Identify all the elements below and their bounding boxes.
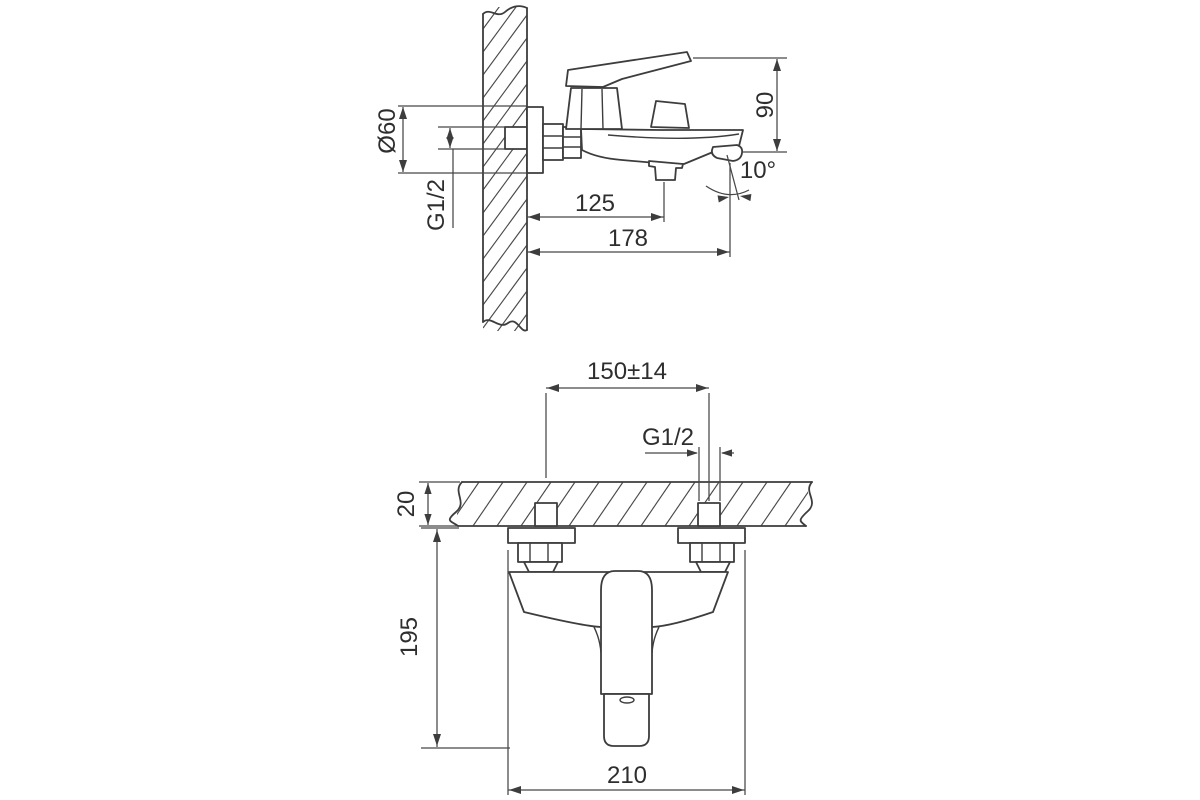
arrow-icon bbox=[547, 384, 559, 392]
spout-tube-front bbox=[604, 694, 649, 746]
angle-arc bbox=[706, 186, 749, 195]
dim-height-195: 195 bbox=[396, 528, 510, 748]
arrow-icon bbox=[773, 59, 781, 71]
arrow-icon bbox=[424, 483, 431, 494]
dim-label-178: 178 bbox=[608, 225, 648, 252]
eccentric-pipe bbox=[505, 127, 527, 149]
pipe-stub-left bbox=[535, 503, 557, 526]
dim-label-150: 150±14 bbox=[587, 358, 667, 385]
mounting-hardware-front bbox=[508, 528, 745, 572]
handle-neck bbox=[566, 88, 622, 129]
dim-wall-to-outlet: 125 bbox=[527, 182, 664, 222]
arrow-icon bbox=[732, 786, 744, 794]
dim-thread-side: G1/2 bbox=[423, 127, 505, 231]
front-view: 150±14 G1/2 bbox=[393, 358, 839, 795]
connector-nut-side bbox=[563, 127, 581, 158]
dim-thread-front: G1/2 bbox=[642, 424, 734, 501]
arrow-icon bbox=[773, 139, 781, 151]
arrow-icon bbox=[721, 449, 732, 456]
wall-hatch-front bbox=[425, 482, 839, 526]
collar-right bbox=[696, 562, 730, 572]
dim-label-20: 20 bbox=[393, 491, 420, 518]
dim-label-195: 195 bbox=[396, 617, 423, 657]
arrow-icon bbox=[424, 514, 431, 525]
side-view: Ø60 G1/2 bbox=[374, 0, 787, 374]
dim-label-210: 210 bbox=[607, 762, 647, 789]
dim-label-10deg: 10° bbox=[740, 157, 776, 184]
wall-section-side bbox=[483, 0, 527, 374]
arrow-icon bbox=[433, 734, 441, 746]
arrow-icon bbox=[433, 530, 441, 542]
arrow-icon bbox=[696, 384, 708, 392]
escutcheon-side bbox=[527, 107, 543, 173]
arrow-icon bbox=[446, 137, 453, 148]
arrow-icon bbox=[651, 213, 663, 221]
arrow-icon bbox=[717, 248, 729, 256]
faucet-dimension-drawing: Ø60 G1/2 bbox=[0, 0, 1200, 800]
handle-column-front bbox=[601, 571, 652, 694]
body-curve-left bbox=[594, 627, 601, 653]
body-curve-right bbox=[652, 627, 659, 653]
dim-label-flange-diameter: Ø60 bbox=[374, 108, 401, 153]
arrow-icon bbox=[528, 213, 540, 221]
collar-left bbox=[524, 562, 558, 572]
nut-left bbox=[518, 543, 562, 562]
arrow-icon bbox=[509, 786, 521, 794]
dim-spout-angle: 10° bbox=[706, 155, 776, 202]
escutcheon-right bbox=[678, 528, 745, 543]
arrow-icon bbox=[528, 248, 540, 256]
wall-section-front bbox=[425, 482, 839, 526]
nut-right bbox=[690, 543, 734, 562]
technical-drawing-page: Ø60 G1/2 bbox=[0, 0, 1200, 800]
escutcheon-left bbox=[508, 528, 575, 543]
pipe-stub-right bbox=[698, 503, 720, 526]
wall-hatch-side bbox=[483, 0, 527, 374]
dim-label-thread-side: G1/2 bbox=[423, 179, 450, 231]
mounting-nut-side bbox=[543, 124, 563, 160]
faucet-front bbox=[509, 571, 728, 746]
spout-tip bbox=[712, 145, 742, 161]
dim-label-90: 90 bbox=[752, 92, 779, 119]
hose-outlet-side bbox=[649, 161, 683, 180]
dim-label-125: 125 bbox=[575, 190, 615, 217]
wall-break-left bbox=[450, 482, 462, 526]
dim-wall-to-spout-tip: 178 bbox=[527, 163, 730, 257]
dim-label-thread-front: G1/2 bbox=[642, 424, 694, 451]
wall-break-top bbox=[483, 6, 527, 14]
arrow-icon bbox=[399, 160, 407, 172]
faucet-side bbox=[566, 52, 743, 180]
wall-break-right bbox=[801, 482, 812, 526]
diverter-knob bbox=[651, 101, 689, 128]
handle-lever-side bbox=[566, 52, 691, 87]
